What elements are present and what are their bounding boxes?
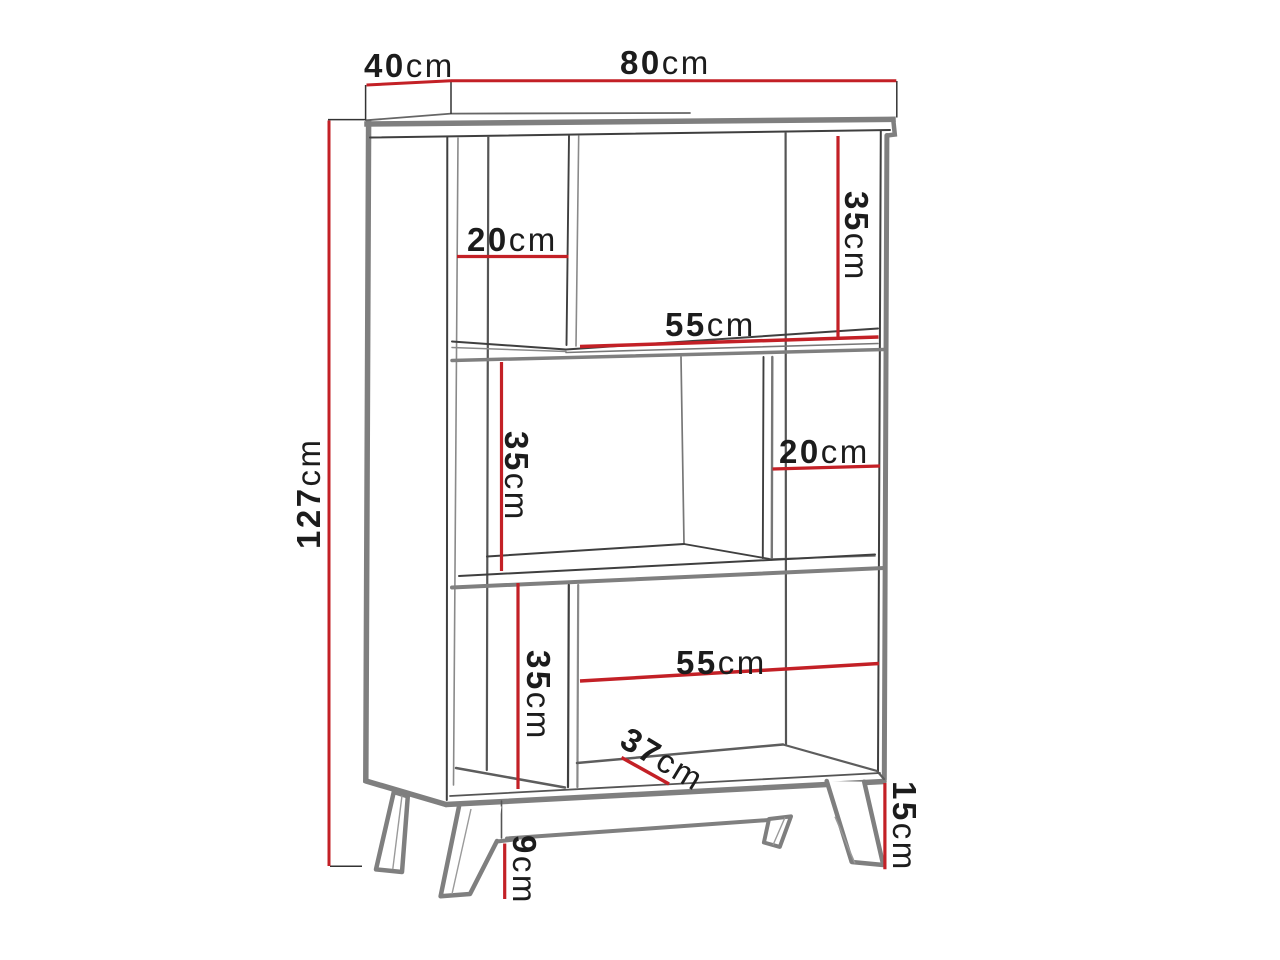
svg-text:80cm: 80cm <box>620 44 711 81</box>
svg-text:35cm: 35cm <box>838 191 875 282</box>
svg-text:40cm: 40cm <box>364 47 455 84</box>
svg-text:20cm: 20cm <box>467 221 558 258</box>
svg-text:127cm: 127cm <box>290 437 327 549</box>
svg-text:15cm: 15cm <box>886 781 923 872</box>
svg-text:20cm: 20cm <box>779 433 870 470</box>
svg-text:35cm: 35cm <box>498 431 535 522</box>
svg-text:55cm: 55cm <box>676 644 767 681</box>
svg-text:55cm: 55cm <box>665 306 756 343</box>
svg-text:35cm: 35cm <box>520 650 557 741</box>
svg-text:9cm: 9cm <box>506 835 543 905</box>
